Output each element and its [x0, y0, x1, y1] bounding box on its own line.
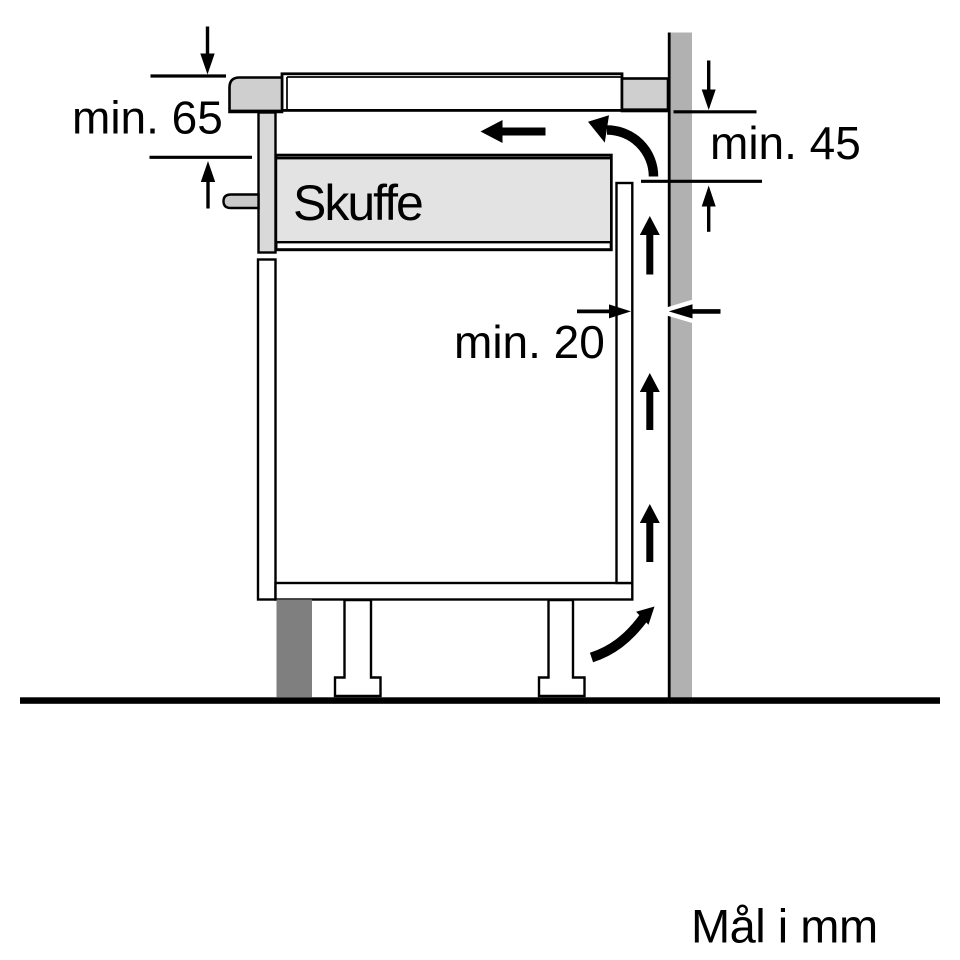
svg-text:min. 45: min. 45 [710, 117, 861, 169]
svg-text:Skuffe: Skuffe [293, 175, 422, 231]
svg-text:min. 20: min. 20 [454, 316, 605, 368]
svg-text:min. 65: min. 65 [72, 92, 223, 144]
svg-text:Mål i mm: Mål i mm [691, 900, 878, 953]
